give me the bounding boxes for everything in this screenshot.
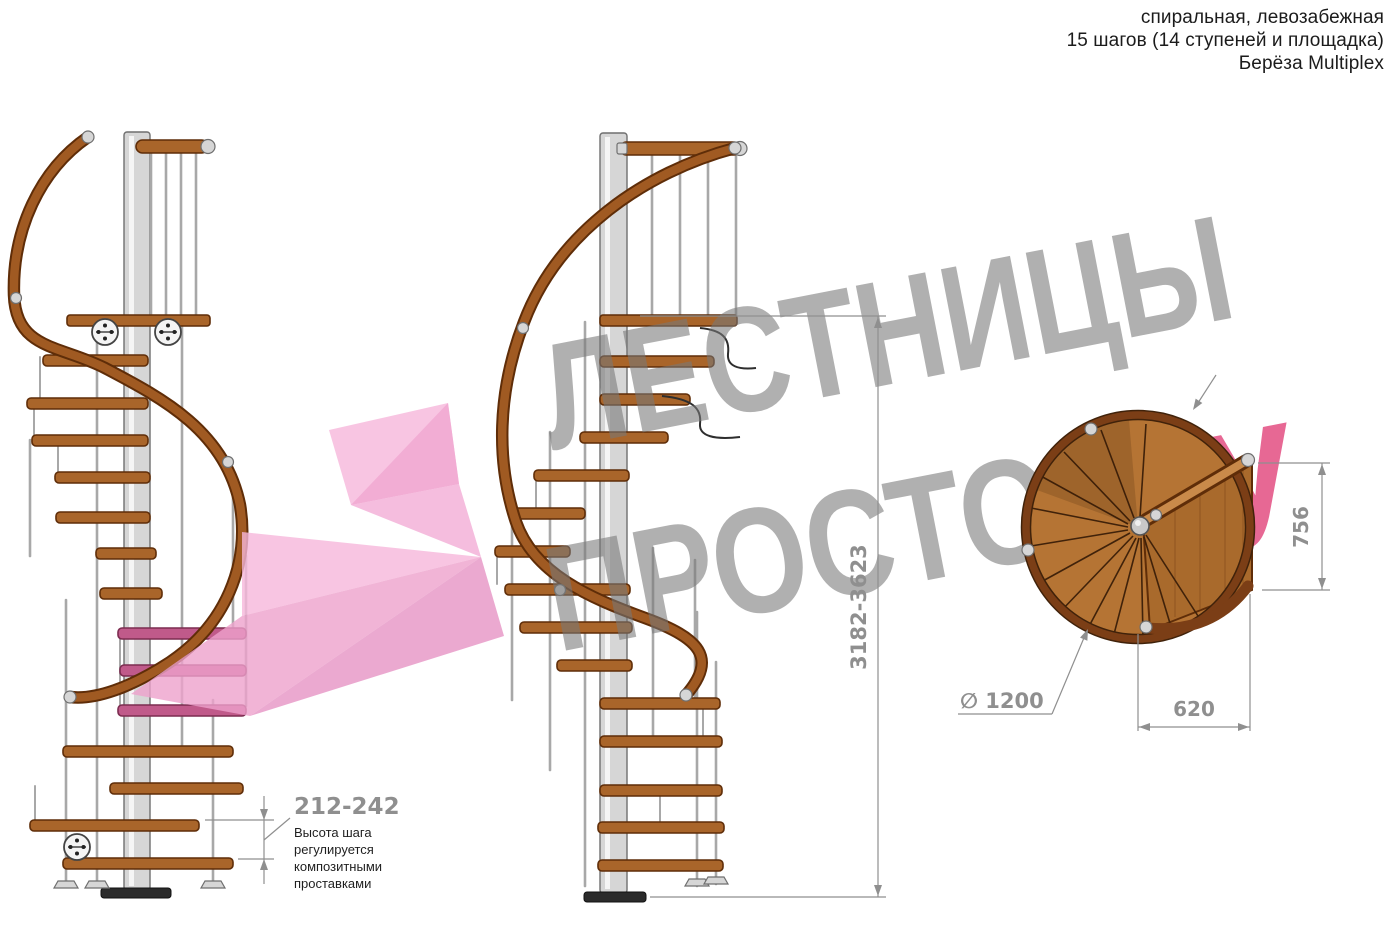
- total-height-label: 3182-3623: [847, 544, 871, 670]
- handrail-cap: [1242, 454, 1255, 467]
- handrail-sleeve: [223, 457, 234, 468]
- drawing-canvas: спиральная, левозабежная 15 шагов (14 ст…: [0, 0, 1400, 944]
- support-foot: [201, 881, 225, 888]
- support-foot: [85, 881, 109, 888]
- dimension-diameter: ∅ 1200: [958, 627, 1092, 714]
- rim-sleeve: [1085, 423, 1097, 435]
- pink-logo-watermark: [131, 403, 504, 716]
- handrail-cap: [680, 689, 692, 701]
- landing-width-label: 620: [1173, 697, 1215, 721]
- base-plate: [584, 892, 646, 902]
- note-line: композитными: [294, 859, 382, 874]
- handrail-sleeve: [1151, 510, 1162, 521]
- handrail-sleeve: [11, 293, 22, 304]
- landing-depth-label: 756: [1289, 506, 1313, 548]
- handrail-cap: [82, 131, 94, 143]
- pole-highlight: [129, 136, 134, 886]
- left-elevation-view: [11, 131, 247, 898]
- dimension-step-height: 212-242 Высота шага регулируется компози…: [205, 794, 400, 891]
- landing-board: [67, 315, 210, 326]
- diameter-label: ∅ 1200: [960, 689, 1044, 713]
- support-foot: [54, 881, 78, 888]
- support-foot: [704, 877, 728, 884]
- handrail-cap: [729, 142, 741, 154]
- handrail-cap: [64, 691, 76, 703]
- flange-disc: [64, 834, 90, 860]
- step-height-note: Высота шага регулируется композитными пр…: [294, 825, 382, 891]
- base-plate: [101, 888, 171, 898]
- note-line: Высота шага: [294, 825, 372, 840]
- note-line: проставками: [294, 876, 371, 891]
- step-height-label: 212-242: [294, 794, 400, 820]
- handrail-cap: [1140, 621, 1152, 633]
- note-line: регулируется: [294, 842, 374, 857]
- rim-sleeve: [1022, 544, 1034, 556]
- plan-pole-hub-highlight: [1135, 520, 1141, 526]
- flange-disc: [155, 319, 181, 345]
- flange-disc: [92, 319, 118, 345]
- technical-drawing: ЛЕСТНИЦЫ ПРОСТО .ру: [0, 0, 1400, 944]
- plan-pole-hub: [1131, 517, 1149, 535]
- center-pole: [124, 132, 150, 890]
